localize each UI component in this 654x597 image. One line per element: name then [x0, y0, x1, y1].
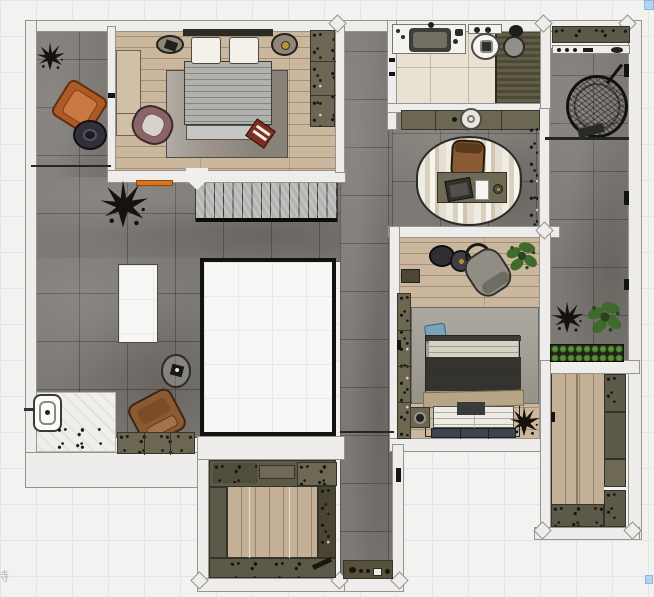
floorplan-canvas: 持: [0, 0, 654, 597]
watermark: 持: [0, 566, 9, 585]
desk-bowl: [493, 184, 503, 194]
bedroom1-wall-left[interactable]: [107, 26, 116, 177]
bedroom1-wardrobe[interactable]: [310, 30, 335, 127]
bench-divider: [488, 429, 489, 439]
decor-dot: [175, 368, 180, 373]
terrace-step-edge: [545, 137, 629, 140]
vanity-decor: [401, 35, 405, 39]
vanity-counter[interactable]: [392, 24, 466, 54]
stair-stringer: [196, 218, 337, 222]
small-tool: [349, 567, 356, 573]
sketch-plant-small[interactable]: [34, 26, 66, 88]
wall-vine-planter[interactable]: [528, 126, 538, 228]
vanity-decor: [453, 39, 458, 44]
shelf-item: [573, 48, 577, 52]
void-opening[interactable]: [200, 258, 336, 436]
door-hinge-mark: [389, 72, 395, 76]
study-wall-right[interactable]: [539, 108, 550, 228]
shower-floor[interactable]: [495, 24, 544, 106]
round-coffee-table[interactable]: [73, 120, 107, 150]
garden-planter[interactable]: [551, 504, 604, 527]
wardrobe-divider: [398, 330, 412, 331]
garden-shelf[interactable]: [343, 560, 393, 579]
basin-sink: [409, 28, 451, 52]
console-divider: [435, 111, 436, 131]
nightstand-left[interactable]: [156, 35, 184, 54]
nightstand-decor: [281, 41, 290, 50]
chair-backrest: [454, 142, 482, 153]
skylight[interactable]: [118, 264, 158, 343]
courtyard-planter-right[interactable]: [318, 486, 336, 558]
stair-treads[interactable]: [195, 182, 338, 222]
potted-plant-green[interactable]: [502, 235, 542, 277]
faucet: [428, 22, 434, 28]
sketch-plant-large[interactable]: [92, 178, 154, 232]
shelf-with-items[interactable]: [552, 45, 630, 54]
nightstand-decor: [164, 39, 178, 52]
small-tool: [385, 569, 390, 574]
potted-plant-dark[interactable]: [505, 405, 543, 439]
table-decor: [170, 364, 184, 378]
selection-handle[interactable]: [644, 0, 654, 10]
scatter-debris: [56, 426, 102, 450]
selection-handle[interactable]: [645, 575, 653, 584]
nightstand-right[interactable]: [271, 33, 298, 56]
garden-planter[interactable]: [604, 374, 626, 412]
bedroom2-wardrobe[interactable]: [397, 293, 411, 439]
bed2-sheet: [429, 341, 518, 357]
shelf-item: [565, 48, 569, 52]
small-tool: [366, 569, 370, 573]
bed1-duvet[interactable]: [184, 61, 272, 125]
door-hinge-mark: [397, 340, 401, 350]
small-tool: [359, 569, 363, 573]
shelf-item: [583, 48, 593, 52]
courtyard-deck[interactable]: [227, 486, 318, 558]
corridor-floor[interactable]: [340, 26, 394, 580]
shelf-item: [557, 48, 561, 52]
courtyard-planter-left[interactable]: [209, 487, 227, 558]
bathroom-wall-right[interactable]: [540, 20, 551, 113]
corridor-step-edge: [340, 431, 394, 433]
wardrobe-divider: [311, 95, 336, 96]
vanity-decor: [396, 29, 400, 33]
console-knob: [452, 117, 457, 122]
laptop: [444, 177, 473, 202]
toilet-seat-decor: [480, 40, 493, 53]
bed1-headboard[interactable]: [183, 29, 273, 36]
notepad: [475, 180, 489, 200]
vase[interactable]: [460, 108, 482, 130]
shelf-item: [611, 47, 623, 53]
planter-box: [297, 462, 337, 486]
deck-joint: [289, 487, 290, 559]
garden-room-wall-left[interactable]: [540, 360, 551, 540]
planter-divider: [144, 433, 145, 455]
shower-drain[interactable]: [503, 36, 525, 58]
door-handle-mark: [624, 64, 629, 77]
garden-planter[interactable]: [604, 459, 626, 487]
desk[interactable]: [437, 172, 507, 203]
wardrobe-divider: [398, 366, 412, 367]
nightstand-decor: [414, 412, 426, 424]
planter-box: [273, 560, 313, 578]
bench-divider: [460, 429, 461, 439]
deck-joint: [249, 487, 250, 559]
hedge-planter[interactable]: [550, 344, 624, 362]
bed2-runner: [457, 402, 485, 415]
small-tool: [373, 568, 382, 576]
table-top-ring: [83, 129, 97, 141]
table-lamp: [459, 259, 464, 264]
chair-cushion: [138, 111, 167, 140]
door-hinge-mark: [389, 58, 395, 62]
courtyard-wall-left[interactable]: [197, 444, 209, 592]
vase-mouth: [467, 115, 475, 123]
terrace-step-edge: [31, 165, 111, 167]
console-divider: [501, 111, 502, 131]
door-handle-mark: [624, 191, 629, 205]
bedroom2-nightstand[interactable]: [409, 407, 430, 428]
potted-plant-dark[interactable]: [549, 291, 585, 345]
bed1-pillow[interactable]: [229, 37, 259, 64]
courtyard-planter-top[interactable]: [209, 460, 336, 487]
wardrobe-divider: [398, 402, 412, 403]
planter-band[interactable]: [552, 26, 630, 43]
deck-joint: [576, 374, 578, 504]
laptop-keyboard: [449, 183, 469, 198]
terrace-parapet-bottom[interactable]: [25, 452, 207, 488]
bedroom1-wall-right[interactable]: [335, 26, 345, 173]
courtyard-wall-bottom[interactable]: [197, 578, 345, 592]
cistern-button: [474, 27, 480, 33]
corridor-wall-right[interactable]: [392, 444, 404, 592]
door-handle-mark: [396, 468, 401, 482]
tub-drain: [45, 410, 50, 415]
vanity-decor: [455, 29, 463, 36]
wardrobe-divider: [311, 61, 336, 62]
garden-planter[interactable]: [604, 412, 626, 459]
tub-pipe: [24, 408, 34, 411]
planter-box: [229, 560, 271, 578]
planter-box: [259, 465, 295, 479]
garden-planter[interactable]: [604, 490, 626, 527]
round-side-table[interactable]: [161, 354, 191, 388]
planter-boxes[interactable]: [117, 432, 195, 454]
bed2-storage-bench: [431, 428, 516, 438]
bowl-item: [497, 188, 500, 191]
door-hinge-mark: [551, 412, 555, 422]
bed2-duvet: [426, 357, 521, 391]
sink-bowl: [413, 32, 447, 48]
courtyard-wall-top[interactable]: [197, 436, 345, 460]
garden-room-wall-top[interactable]: [540, 360, 640, 374]
garden-room-deck[interactable]: [551, 374, 604, 504]
bed1-pillow[interactable]: [191, 37, 221, 64]
outer-wall-right[interactable]: [628, 20, 642, 540]
door-hinge-mark: [108, 93, 115, 98]
bedroom2-wall-console[interactable]: [401, 269, 420, 283]
toilet-bowl[interactable]: [471, 33, 500, 60]
planter-box: [213, 463, 257, 483]
planter-divider: [170, 433, 171, 455]
potted-plant-green[interactable]: [583, 289, 627, 345]
bedroom2-wall-bottom[interactable]: [389, 438, 562, 452]
